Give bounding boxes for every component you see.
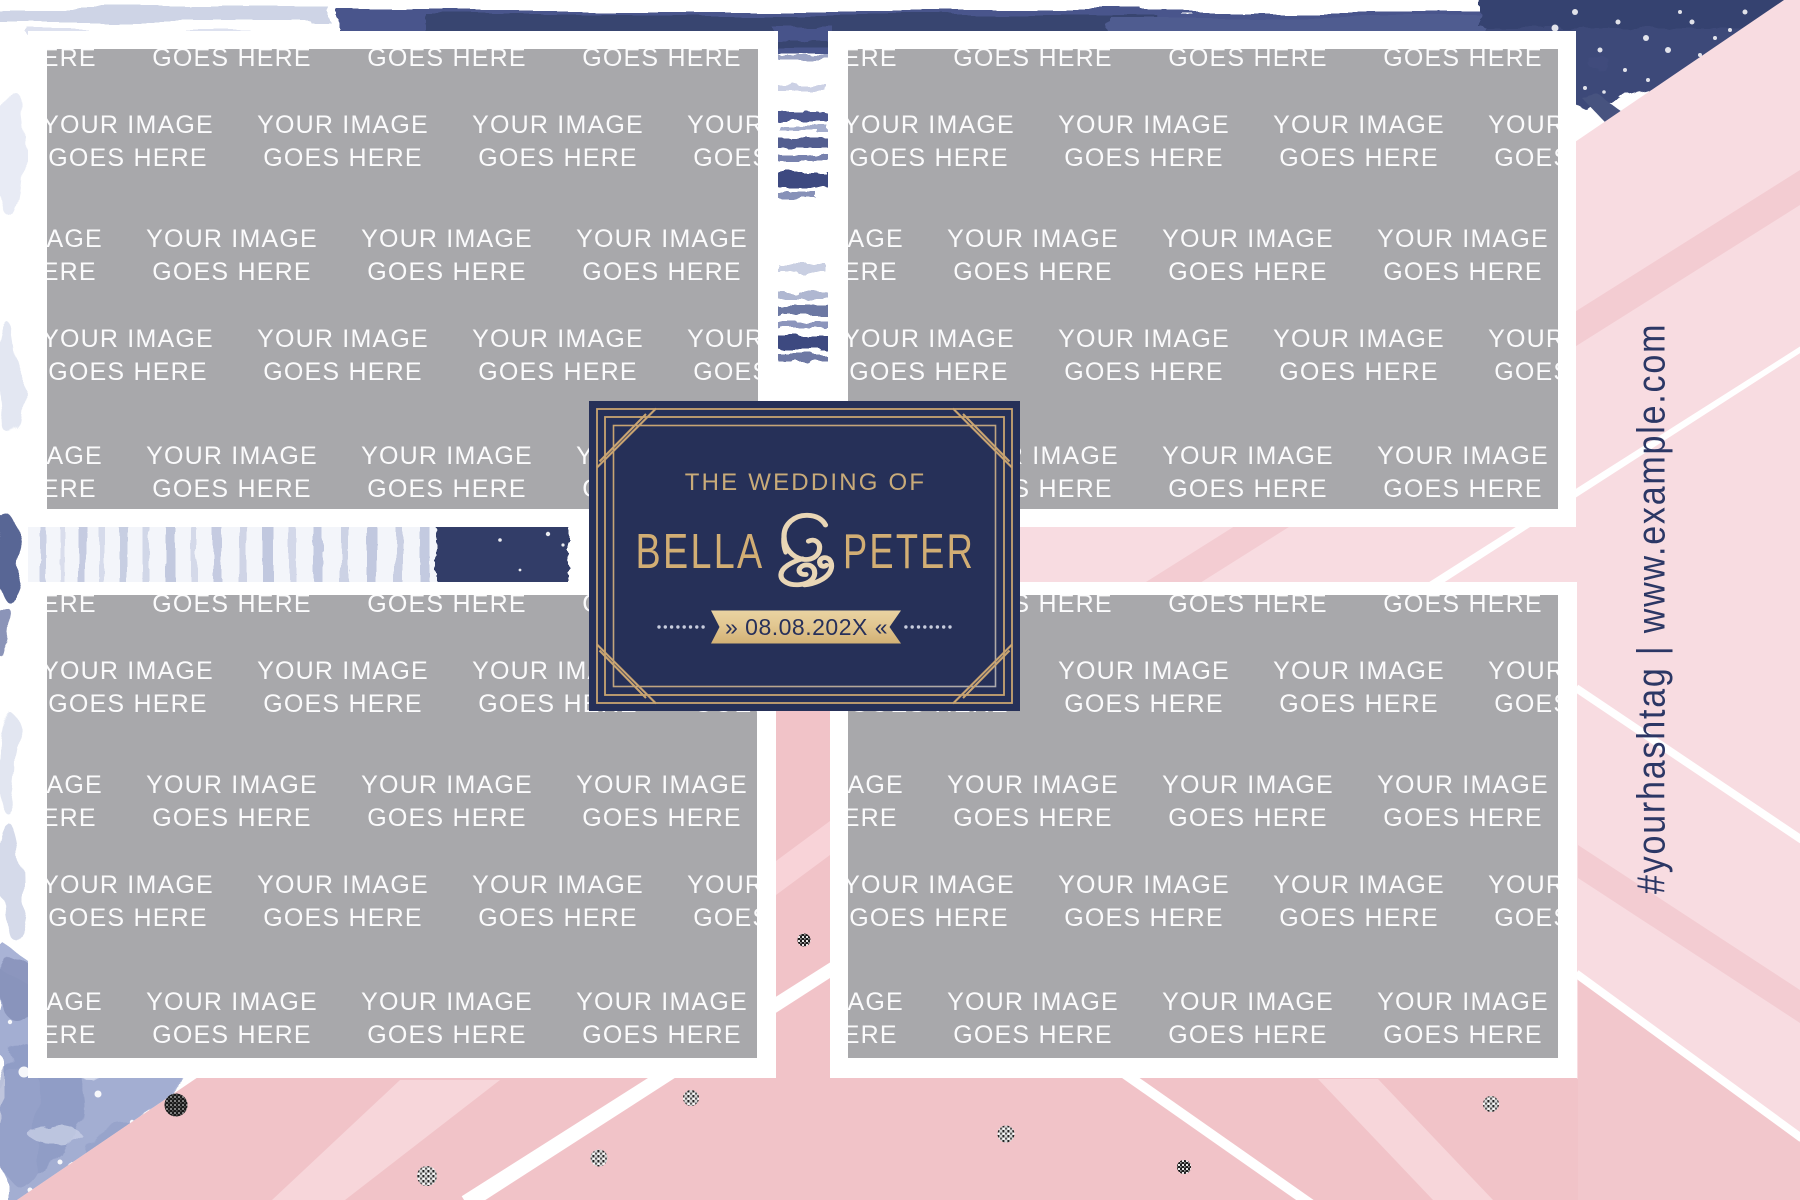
svg-text:» 08.08.202X «: » 08.08.202X « xyxy=(725,614,888,640)
svg-text:BELLA: BELLA xyxy=(636,524,765,579)
svg-text:THE WEDDING OF: THE WEDDING OF xyxy=(685,469,926,496)
svg-text:PETER: PETER xyxy=(843,525,975,580)
